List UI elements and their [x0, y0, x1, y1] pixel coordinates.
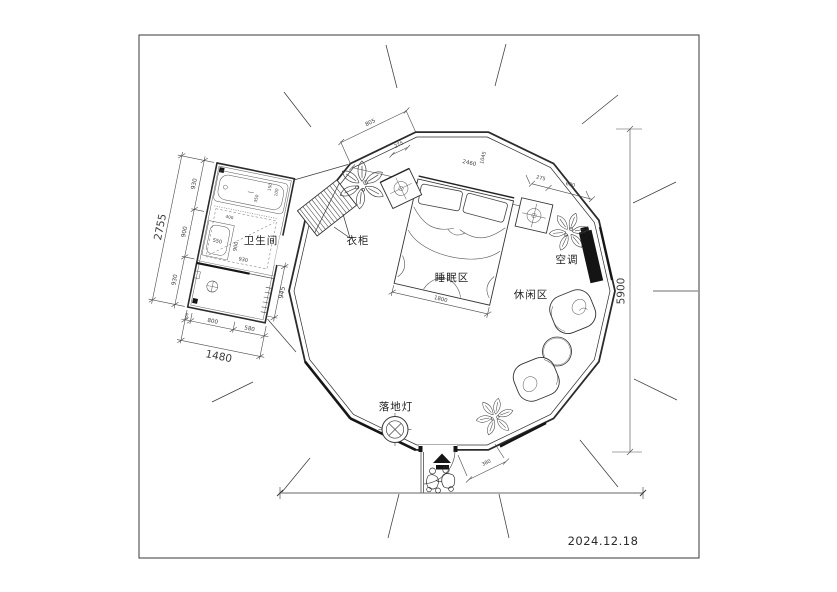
label-sleeping-area: 睡眠区	[435, 271, 470, 284]
label-air-conditioner: 空调	[556, 253, 579, 266]
date-stamp: 2024.12.18	[568, 534, 639, 548]
label-floor-lamp: 落地灯	[379, 400, 414, 413]
floor-plan-canvas: 1800	[0, 0, 837, 592]
label-wardrobe: 衣柜	[347, 234, 370, 247]
dim-5900: 5900	[616, 278, 628, 305]
label-leisure-area: 休闲区	[514, 288, 549, 301]
label-bathroom: 卫生间	[244, 234, 279, 247]
